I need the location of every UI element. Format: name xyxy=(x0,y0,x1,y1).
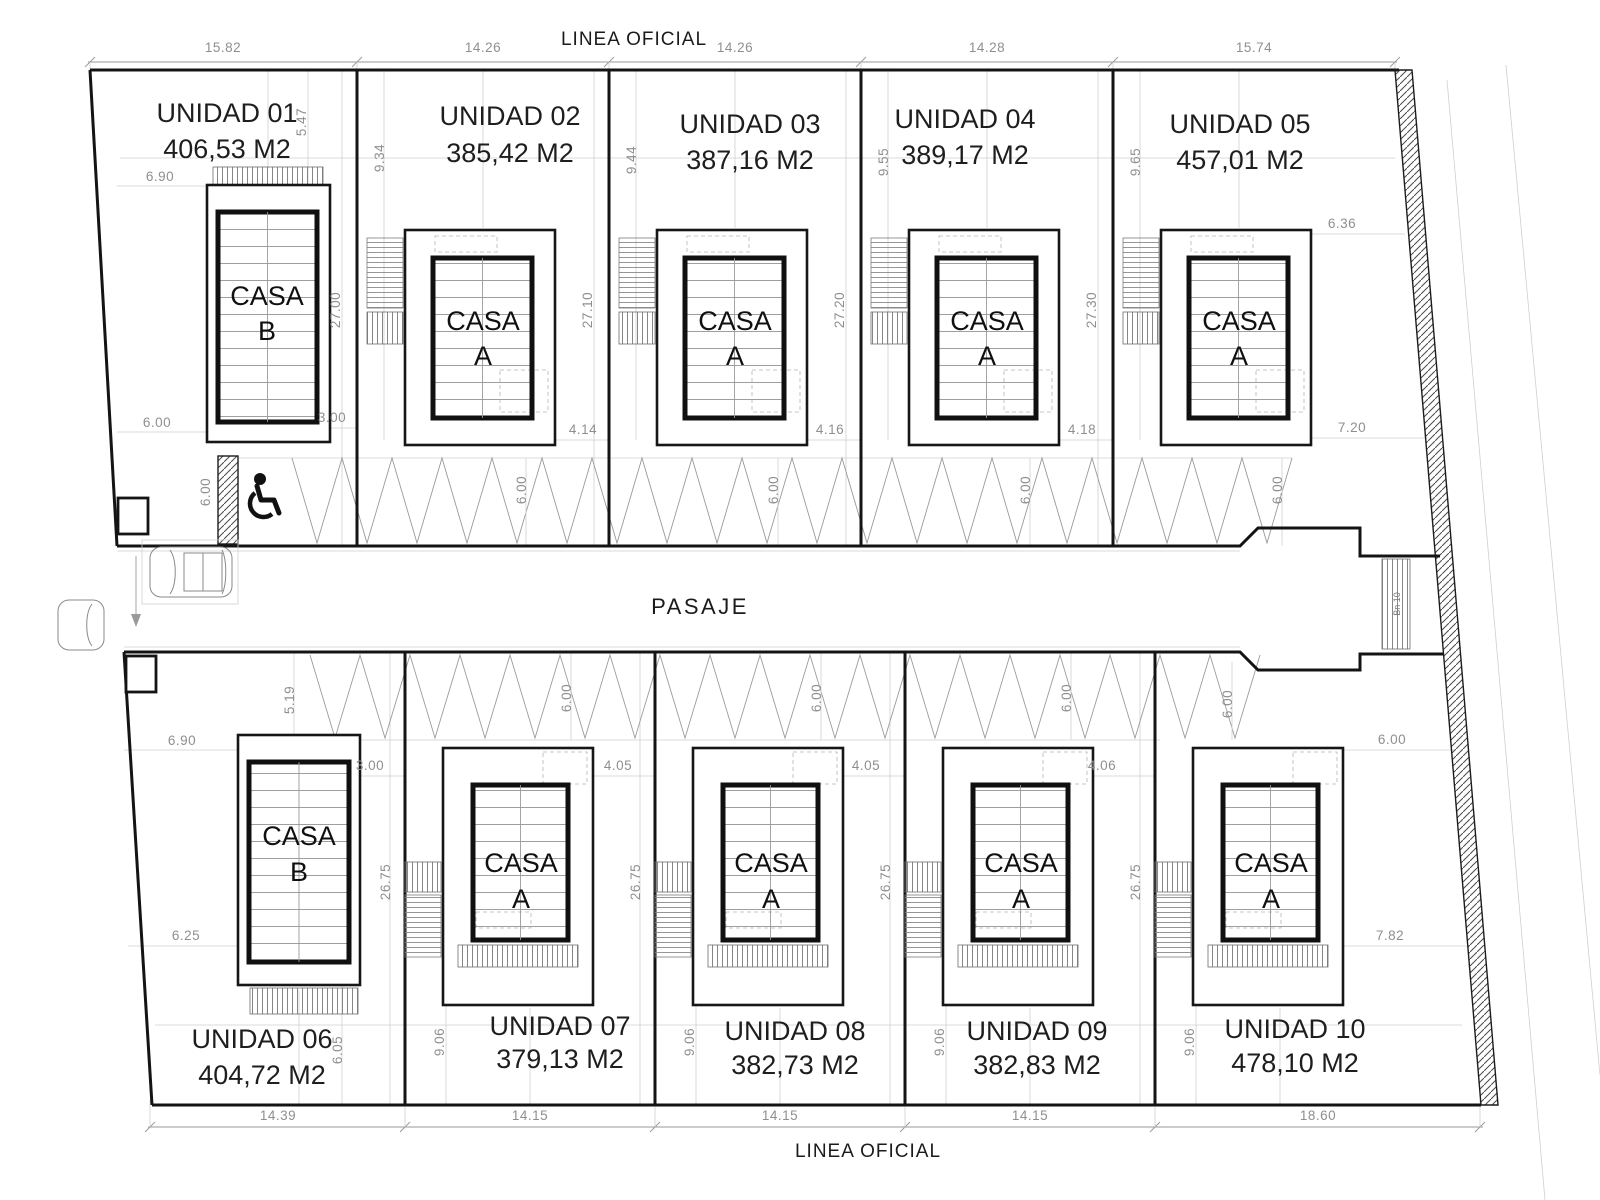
parking-strip-bottom xyxy=(310,652,1260,740)
bottom-dim-1: 14.39 xyxy=(260,1108,296,1123)
car-icon xyxy=(142,540,238,604)
unit-05-casa-letter: A xyxy=(1230,341,1248,371)
dim-d04: 27.30 xyxy=(1084,292,1099,328)
unit-10-name: UNIDAD 10 xyxy=(1224,1014,1365,1044)
dim-park04: 6.00 xyxy=(1018,476,1033,504)
house-casa-a-unit-10: CASA A xyxy=(1155,748,1343,1005)
dim-park03: 6.00 xyxy=(766,476,781,504)
dim-u05-side: 7.20 xyxy=(1338,420,1366,435)
dim-u10-rear: 7.82 xyxy=(1376,928,1404,943)
unit-06-area: 404,72 M2 xyxy=(198,1060,326,1090)
offsite-street-lines xyxy=(1447,65,1600,1200)
unit-01-casa-label: CASA xyxy=(230,281,304,311)
dim-u06-side2: 6.25 xyxy=(172,928,200,943)
dim-u06-rear: 6.05 xyxy=(330,1036,345,1064)
unit-08-area: 382,73 M2 xyxy=(731,1050,859,1080)
house-casa-a-unit-04: CASA A xyxy=(871,230,1059,445)
unit-05-name: UNIDAD 05 xyxy=(1169,109,1310,139)
handicap-hatch-strip xyxy=(218,456,238,544)
unit-07-casa-label: CASA xyxy=(484,848,558,878)
dim-d10: 26.75 xyxy=(1128,864,1143,900)
top-dim-5: 15.74 xyxy=(1236,40,1272,55)
right-boundary-hatched-wall xyxy=(1395,70,1498,1105)
house-casa-a-unit-05: CASA A xyxy=(1123,230,1311,445)
unit-09-area: 382,83 M2 xyxy=(973,1050,1101,1080)
direction-arrow-icon xyxy=(131,556,141,627)
unit-10-area: 478,10 M2 xyxy=(1231,1048,1359,1078)
unit-07-casa-letter: A xyxy=(512,884,530,914)
dim-park10: 6.00 xyxy=(1220,690,1235,718)
dim-w08: 9.06 xyxy=(682,1028,697,1056)
unit-03-lot: UNIDAD 03 387,16 M2 CASA A xyxy=(619,109,821,445)
unit-03-casa-label: CASA xyxy=(698,306,772,336)
pasaje-passage: PASAJE Bn 10 xyxy=(58,498,1443,692)
unit-07-area: 379,13 M2 xyxy=(496,1044,624,1074)
site-plan-drawing: 15.82 14.26 14.26 14.28 15.74 LINEA OFIC… xyxy=(0,0,1600,1200)
unit-04-lot: UNIDAD 04 389,17 M2 CASA A xyxy=(871,104,1059,445)
unit-04-area: 389,17 M2 xyxy=(901,140,1029,170)
unit-09-casa-letter: A xyxy=(1012,884,1030,914)
dim-park07: 6.00 xyxy=(559,684,574,712)
unit-10-casa-letter: A xyxy=(1262,884,1280,914)
bottom-dimension-line: 14.39 14.15 14.15 14.15 18.60 LINEA OFIC… xyxy=(145,1100,1485,1162)
unit-09-name: UNIDAD 09 xyxy=(966,1016,1107,1046)
wheelchair-icon xyxy=(250,473,279,517)
bottom-dim-5: 18.60 xyxy=(1300,1108,1336,1123)
top-dim-1: 15.82 xyxy=(205,40,241,55)
unit-03-area: 387,16 M2 xyxy=(686,145,814,175)
unit-08-casa-letter: A xyxy=(762,884,780,914)
dim-w05: 9.65 xyxy=(1128,148,1143,176)
dim-w09: 9.06 xyxy=(932,1028,947,1056)
dim-u06-side: 6.90 xyxy=(168,733,196,748)
house-casa-a-unit-09: CASA A xyxy=(905,748,1093,1005)
unit-05-casa-label: CASA xyxy=(1202,306,1276,336)
car-icon-partial xyxy=(58,600,104,650)
entrance-post-top xyxy=(118,498,148,534)
dim-gap09: 4.06 xyxy=(1088,758,1116,773)
dim-w07: 9.06 xyxy=(432,1028,447,1056)
linea-oficial-bottom-label: LINEA OFICIAL xyxy=(795,1141,941,1162)
unit-08-casa-label: CASA xyxy=(734,848,808,878)
unit-06-casa-label: CASA xyxy=(262,821,336,851)
dim-u01-front: 5.47 xyxy=(294,108,309,136)
dim-w02: 9.34 xyxy=(372,144,387,172)
dim-gap07: 4.05 xyxy=(604,758,632,773)
unit-01-name: UNIDAD 01 xyxy=(156,98,297,128)
house-casa-a-unit-07: CASA A xyxy=(405,748,593,1005)
stair-note: Bn 10 xyxy=(1392,592,1402,616)
unit-09-casa-label: CASA xyxy=(984,848,1058,878)
house-casa-b-unit-01: CASA B xyxy=(207,167,330,442)
dim-d08: 26.75 xyxy=(628,864,643,900)
dim-gap04: 4.18 xyxy=(1068,422,1096,437)
dim-d01: 27.00 xyxy=(328,292,343,328)
unit-08-name: UNIDAD 08 xyxy=(724,1016,865,1046)
dim-d03: 27.20 xyxy=(832,292,847,328)
dim-gap08: 4.05 xyxy=(852,758,880,773)
dim-w04: 9.55 xyxy=(876,148,891,176)
top-dim-2: 14.26 xyxy=(465,40,501,55)
house-casa-a-unit-08: CASA A xyxy=(655,748,843,1005)
unit-05-area: 457,01 M2 xyxy=(1176,145,1304,175)
dim-d07: 26.75 xyxy=(378,864,393,900)
dim-u01-side: 6.90 xyxy=(146,169,174,184)
bottom-dim-4: 14.15 xyxy=(1012,1108,1048,1123)
unit-04-casa-label: CASA xyxy=(950,306,1024,336)
unit-02-lot: UNIDAD 02 385,42 M2 CASA A xyxy=(367,101,581,445)
unit-04-casa-letter: A xyxy=(978,341,996,371)
entrance-post-bottom xyxy=(126,656,156,692)
unit-02-casa-label: CASA xyxy=(446,306,520,336)
dim-park05: 6.00 xyxy=(1270,476,1285,504)
dim-park09: 6.00 xyxy=(1059,684,1074,712)
dim-gap02: 4.14 xyxy=(569,422,597,437)
dim-u01-gap: 3.00 xyxy=(318,410,346,425)
top-dim-3: 14.26 xyxy=(717,40,753,55)
site-plan-canvas: 15.82 14.26 14.26 14.28 15.74 LINEA OFIC… xyxy=(0,0,1600,1200)
linea-oficial-top-label: LINEA OFICIAL xyxy=(561,29,707,50)
unit-10-casa-label: CASA xyxy=(1234,848,1308,878)
dim-d02: 27.10 xyxy=(580,292,595,328)
dim-w03: 9.44 xyxy=(624,146,639,174)
unit-02-name: UNIDAD 02 xyxy=(439,101,580,131)
unit-05-lot: UNIDAD 05 457,01 M2 CASA A xyxy=(1123,109,1311,445)
top-dimension-line: 15.82 14.26 14.26 14.28 15.74 LINEA OFIC… xyxy=(85,29,1400,72)
unit-06-casa-letter: B xyxy=(290,857,308,887)
dim-u10-side: 6.00 xyxy=(1378,732,1406,747)
unit-02-area: 385,42 M2 xyxy=(446,138,574,168)
dim-u01-side2: 6.00 xyxy=(143,415,171,430)
dim-d09: 26.75 xyxy=(878,864,893,900)
house-casa-a-unit-03: CASA A xyxy=(619,230,807,445)
house-casa-a-unit-02: CASA A xyxy=(367,230,555,445)
bottom-dim-2: 14.15 xyxy=(512,1108,548,1123)
dim-u01-park: 6.00 xyxy=(198,478,213,506)
unit-03-casa-letter: A xyxy=(726,341,744,371)
dim-w10: 9.06 xyxy=(1182,1028,1197,1056)
unit-06-name: UNIDAD 06 xyxy=(191,1024,332,1054)
dim-gap03: 4.16 xyxy=(816,422,844,437)
unit-07-name: UNIDAD 07 xyxy=(489,1011,630,1041)
pasaje-label: PASAJE xyxy=(651,594,749,619)
unit-04-name: UNIDAD 04 xyxy=(894,104,1035,134)
unit-01-lot: UNIDAD 01 406,53 M2 CASA B xyxy=(156,98,330,442)
dim-u06-front: 5.19 xyxy=(282,686,297,714)
house-casa-b-unit-06: CASA B xyxy=(238,735,360,1014)
unit-03-name: UNIDAD 03 xyxy=(679,109,820,139)
dim-park02: 6.00 xyxy=(514,476,529,504)
unit-02-casa-letter: A xyxy=(474,341,492,371)
dim-park08: 6.00 xyxy=(809,684,824,712)
bottom-dim-3: 14.15 xyxy=(762,1108,798,1123)
dim-u05-front: 6.36 xyxy=(1328,216,1356,231)
parking-strip-top xyxy=(218,456,1292,546)
top-dim-4: 14.28 xyxy=(969,40,1005,55)
unit-01-area: 406,53 M2 xyxy=(163,134,291,164)
unit-01-casa-letter: B xyxy=(258,316,276,346)
dim-u06-gap: 3.00 xyxy=(356,758,384,773)
